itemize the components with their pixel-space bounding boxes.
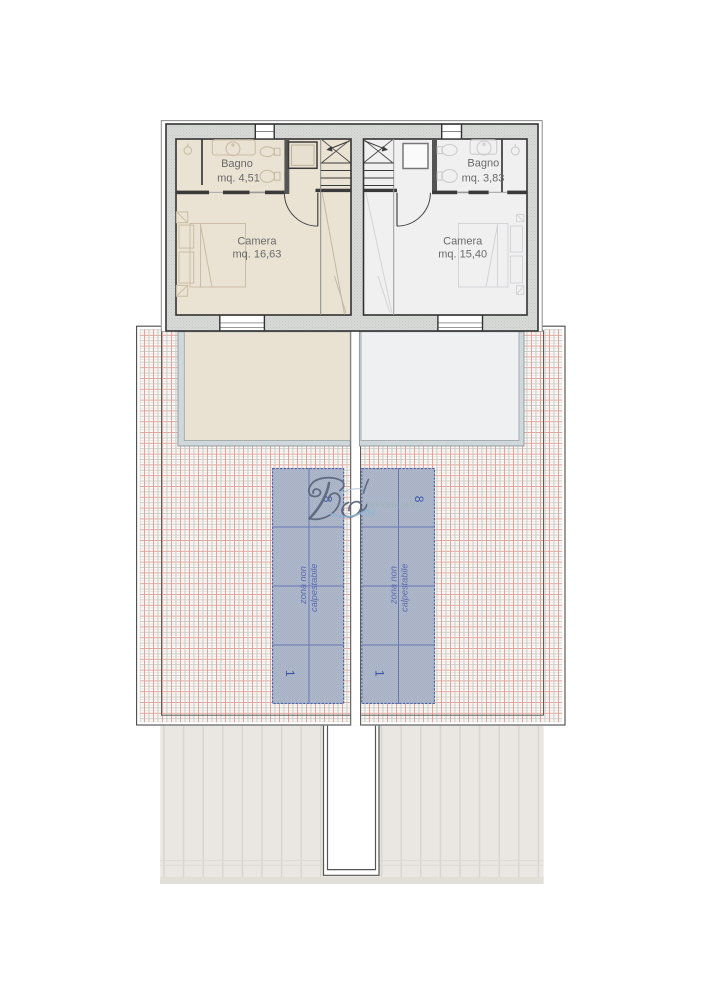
svg-text:zona non: zona non: [388, 566, 398, 605]
svg-text:mq. 4,51: mq. 4,51: [217, 172, 260, 184]
svg-text:Bagno: Bagno: [467, 158, 499, 170]
svg-text:calpestabile: calpestabile: [399, 563, 409, 612]
svg-text:1: 1: [372, 670, 386, 677]
svg-text:Bagno: Bagno: [221, 158, 253, 170]
svg-text:da: da: [365, 508, 375, 518]
svg-text:calpestabile: calpestabile: [309, 563, 319, 612]
svg-text:zona non: zona non: [298, 566, 308, 605]
svg-text:mq. 16,63: mq. 16,63: [232, 249, 281, 261]
svg-text:Camera: Camera: [237, 235, 277, 247]
svg-text:1: 1: [283, 670, 297, 677]
svg-text:mq. 15,40: mq. 15,40: [438, 249, 487, 261]
svg-text:mq. 3,83: mq. 3,83: [462, 172, 505, 184]
svg-text:Camera: Camera: [443, 235, 483, 247]
